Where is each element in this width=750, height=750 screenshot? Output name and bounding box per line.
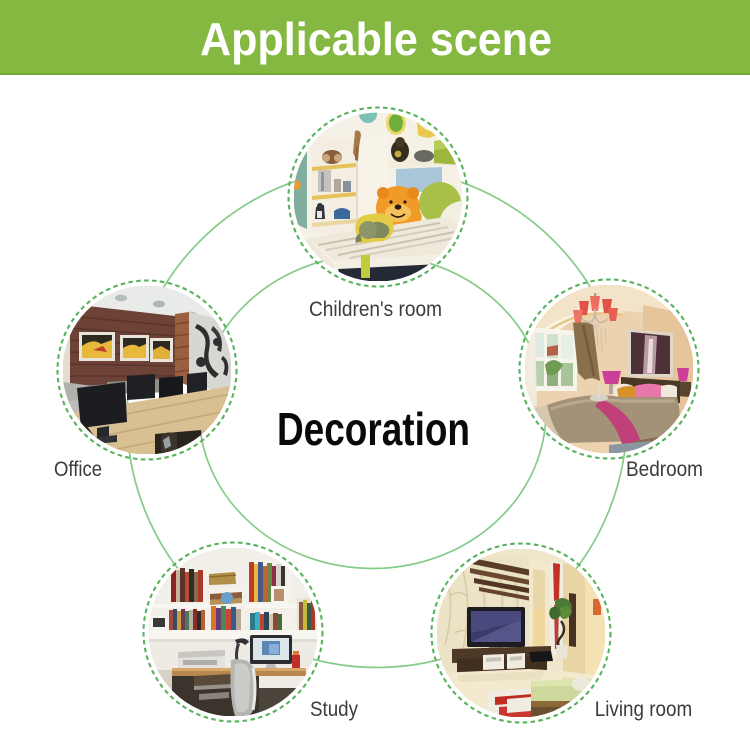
svg-text:Bedroom: Bedroom	[626, 458, 703, 481]
svg-text:Applicable scene: Applicable scene	[200, 13, 552, 65]
svg-text:Decoration: Decoration	[277, 403, 470, 455]
svg-text:Office: Office	[54, 458, 102, 481]
svg-text:Children's room: Children's room	[309, 298, 442, 321]
svg-text:Living room: Living room	[595, 698, 693, 721]
svg-text:Study: Study	[310, 698, 358, 721]
